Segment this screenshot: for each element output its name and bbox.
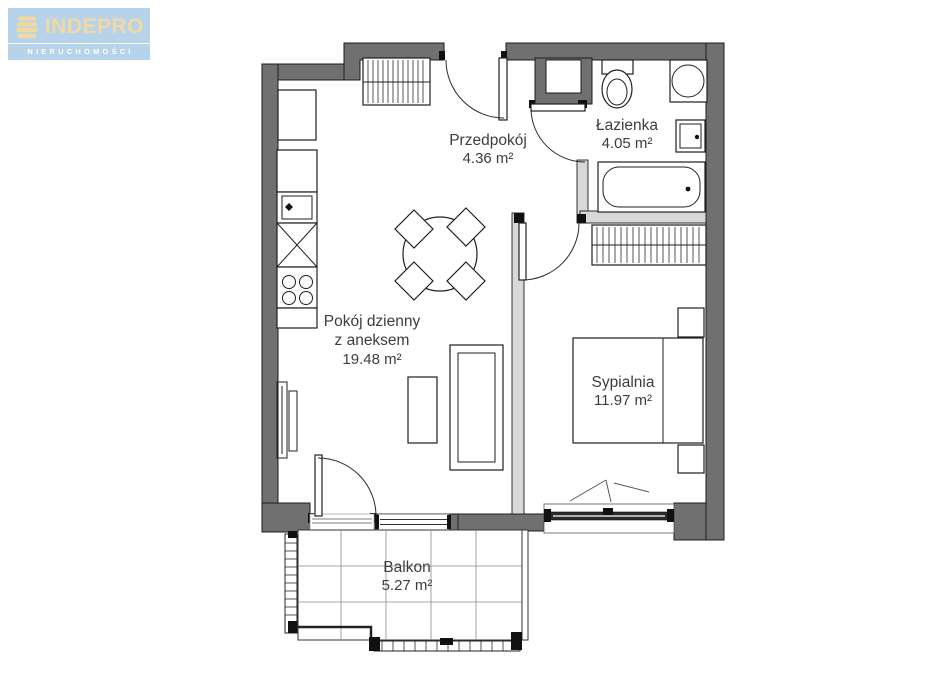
room-label-przedpokoj: Przedpokój 4.36 m²	[408, 131, 568, 169]
stove	[277, 267, 317, 308]
entrance-door	[439, 51, 507, 120]
room-name: Przedpokój	[408, 131, 568, 150]
toilet	[602, 60, 633, 108]
room-name: Pokój dzienny	[292, 312, 452, 331]
room-label-pokoj-dzienny: Pokój dzienny z aneksem 19.48 m²	[292, 312, 452, 370]
room-area: 19.48 m²	[292, 351, 452, 370]
floorplan-page: INDEPRO NIERUCHOMOŚCI Przedpokój 4.36 m²…	[0, 0, 932, 697]
balcony-railing-left	[285, 531, 297, 633]
installation-shaft	[535, 58, 592, 104]
kitchen-counter	[277, 150, 317, 192]
balcony-door	[308, 455, 376, 531]
dining-table-set	[395, 208, 485, 300]
bedroom-door	[514, 213, 586, 280]
room-name: Sypialnia	[553, 373, 693, 392]
room-area: 4.05 m²	[567, 135, 687, 154]
sofa	[450, 345, 503, 470]
washing-machine	[670, 60, 707, 102]
radiator	[277, 382, 297, 458]
dishwasher	[277, 223, 317, 267]
fridge	[278, 90, 316, 140]
room-area: 11.97 m²	[553, 392, 693, 411]
living-room-window	[375, 514, 451, 531]
room-label-balkon: Balkon 5.27 m²	[337, 558, 477, 596]
room-name: Balkon	[337, 558, 477, 577]
hallway-wardrobe	[363, 58, 430, 105]
room-name-line2: z aneksem	[292, 331, 452, 350]
nightstand	[678, 308, 704, 337]
kitchen-sink	[277, 192, 317, 223]
logo-tagline: NIERUCHOMOŚCI	[8, 43, 150, 60]
bedroom-wardrobe	[592, 225, 706, 265]
room-name: Łazienka	[567, 116, 687, 135]
room-label-lazienka: Łazienka 4.05 m²	[567, 116, 687, 154]
window-opening-indicator	[570, 480, 649, 502]
coffee-table	[408, 377, 437, 443]
bathtub	[598, 162, 705, 212]
interior-walls	[512, 160, 706, 514]
room-area: 5.27 m²	[337, 577, 477, 596]
bedroom-window	[544, 480, 674, 533]
room-area: 4.36 m²	[408, 150, 568, 169]
nightstand	[678, 445, 704, 473]
logo-company-name: INDEPRO	[45, 15, 144, 39]
indepro-logo: INDEPRO NIERUCHOMOŚCI	[8, 8, 150, 60]
room-label-sypialnia: Sypialnia 11.97 m²	[553, 373, 693, 411]
layers-icon	[14, 13, 40, 40]
kitchen-fixtures	[277, 90, 317, 328]
